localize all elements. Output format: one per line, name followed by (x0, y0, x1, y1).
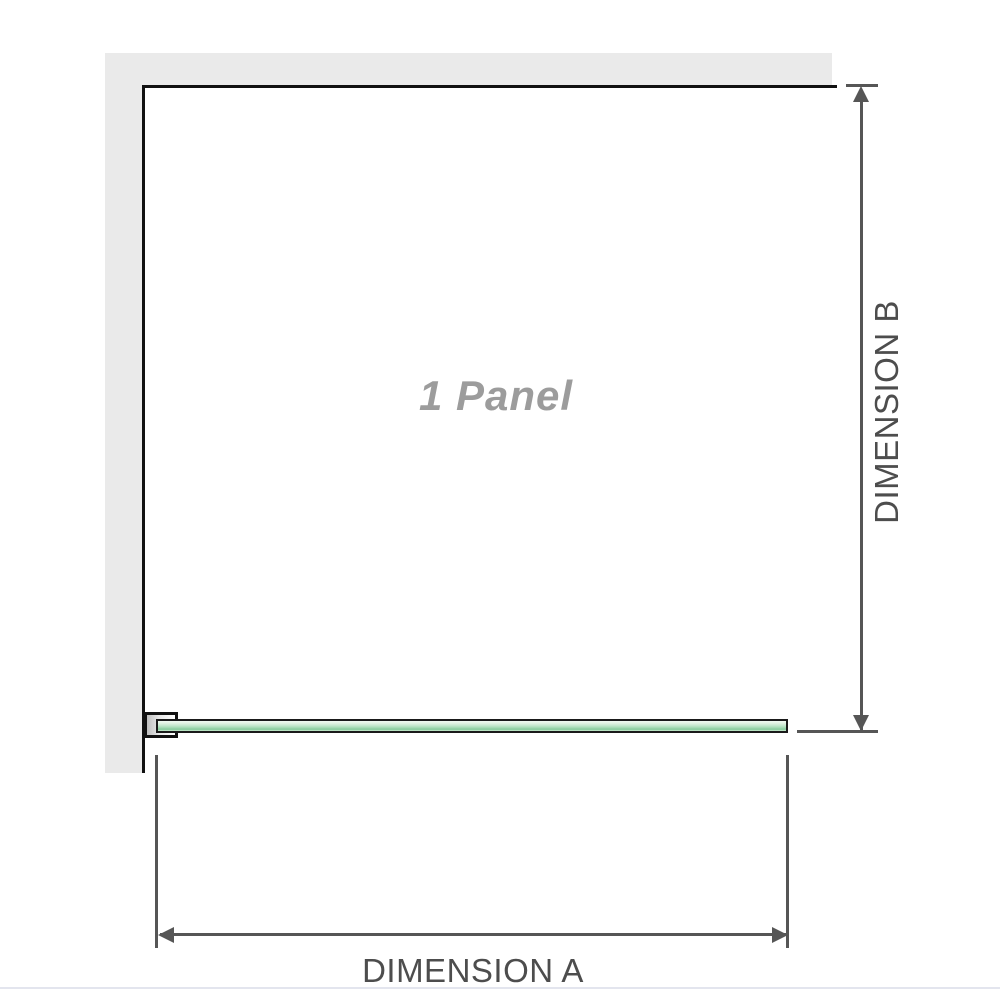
dimension-b-line (860, 95, 863, 731)
dimension-b-label: DIMENSION B (868, 300, 906, 524)
panel-dimension-diagram: 1 Panel DIMENSION B DIMENSION A (0, 0, 1000, 1000)
dimension-b-arrow-up-icon (853, 86, 869, 102)
dimension-a-arrow-left-icon (158, 927, 174, 943)
dimension-a-label: DIMENSION A (362, 952, 584, 990)
bottom-rule (0, 987, 1000, 989)
glass-panel-bar (156, 719, 788, 733)
panel-outline (142, 85, 837, 773)
dimension-a-arrow-right-icon (772, 927, 788, 943)
dimension-a-extension-right (786, 755, 789, 948)
dimension-a-line (160, 933, 787, 936)
wall-top-strip (105, 53, 832, 85)
dimension-a-extension-left (155, 755, 158, 948)
dimension-b-arrow-down-icon (853, 715, 869, 731)
panel-count-label: 1 Panel (419, 372, 573, 420)
wall-left-strip (105, 53, 142, 773)
